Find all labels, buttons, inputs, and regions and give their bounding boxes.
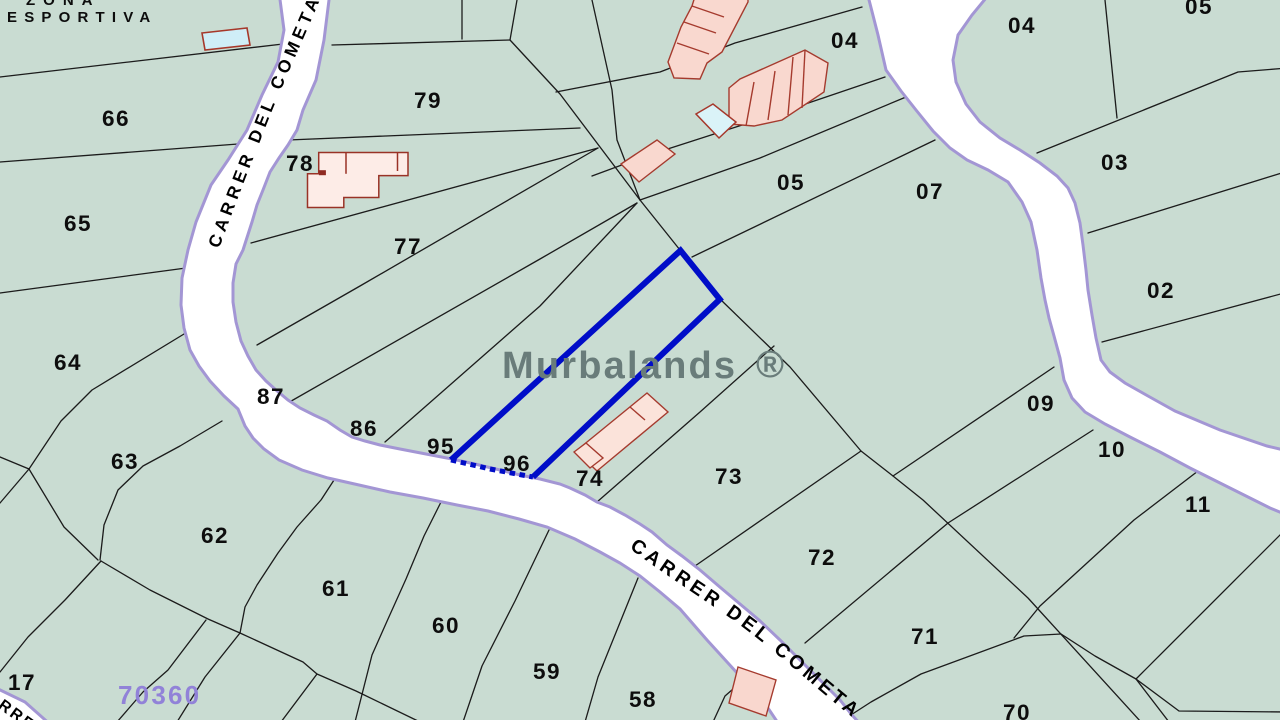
svg-text:58: 58	[629, 687, 657, 712]
svg-text:09: 09	[1027, 391, 1055, 416]
svg-text:71: 71	[911, 624, 939, 649]
svg-text:ZONA: ZONA	[26, 0, 101, 9]
svg-text:07: 07	[916, 179, 944, 204]
svg-text:11: 11	[1185, 492, 1212, 517]
svg-text:70: 70	[1003, 700, 1031, 720]
svg-text:10: 10	[1098, 437, 1126, 462]
svg-text:04: 04	[1008, 13, 1036, 38]
svg-text:79: 79	[414, 88, 442, 113]
svg-text:Murbalands: Murbalands	[502, 345, 737, 387]
svg-text:66: 66	[102, 106, 130, 131]
svg-text:62: 62	[201, 523, 229, 548]
svg-text:96: 96	[503, 451, 531, 476]
svg-text:®: ®	[756, 344, 784, 386]
svg-text:61: 61	[322, 576, 350, 601]
svg-text:05: 05	[777, 170, 805, 195]
svg-text:17: 17	[8, 670, 36, 695]
svg-text:95: 95	[427, 434, 455, 459]
svg-text:02: 02	[1147, 278, 1175, 303]
svg-text:78: 78	[286, 151, 314, 176]
svg-text:86: 86	[350, 416, 378, 441]
svg-text:73: 73	[715, 464, 743, 489]
svg-text:77: 77	[394, 234, 422, 259]
svg-text:87: 87	[257, 384, 285, 409]
svg-text:72: 72	[808, 545, 836, 570]
svg-text:59: 59	[533, 659, 561, 684]
svg-text:65: 65	[64, 211, 92, 236]
svg-text:03: 03	[1101, 150, 1129, 175]
svg-text:60: 60	[432, 613, 460, 638]
svg-text:04: 04	[831, 28, 859, 53]
svg-text:74: 74	[576, 466, 604, 491]
svg-text:05: 05	[1185, 0, 1213, 19]
svg-text:ESPORTIVA: ESPORTIVA	[7, 9, 157, 26]
svg-text:63: 63	[111, 449, 139, 474]
svg-text:70360: 70360	[118, 680, 201, 710]
svg-text:64: 64	[54, 350, 82, 375]
